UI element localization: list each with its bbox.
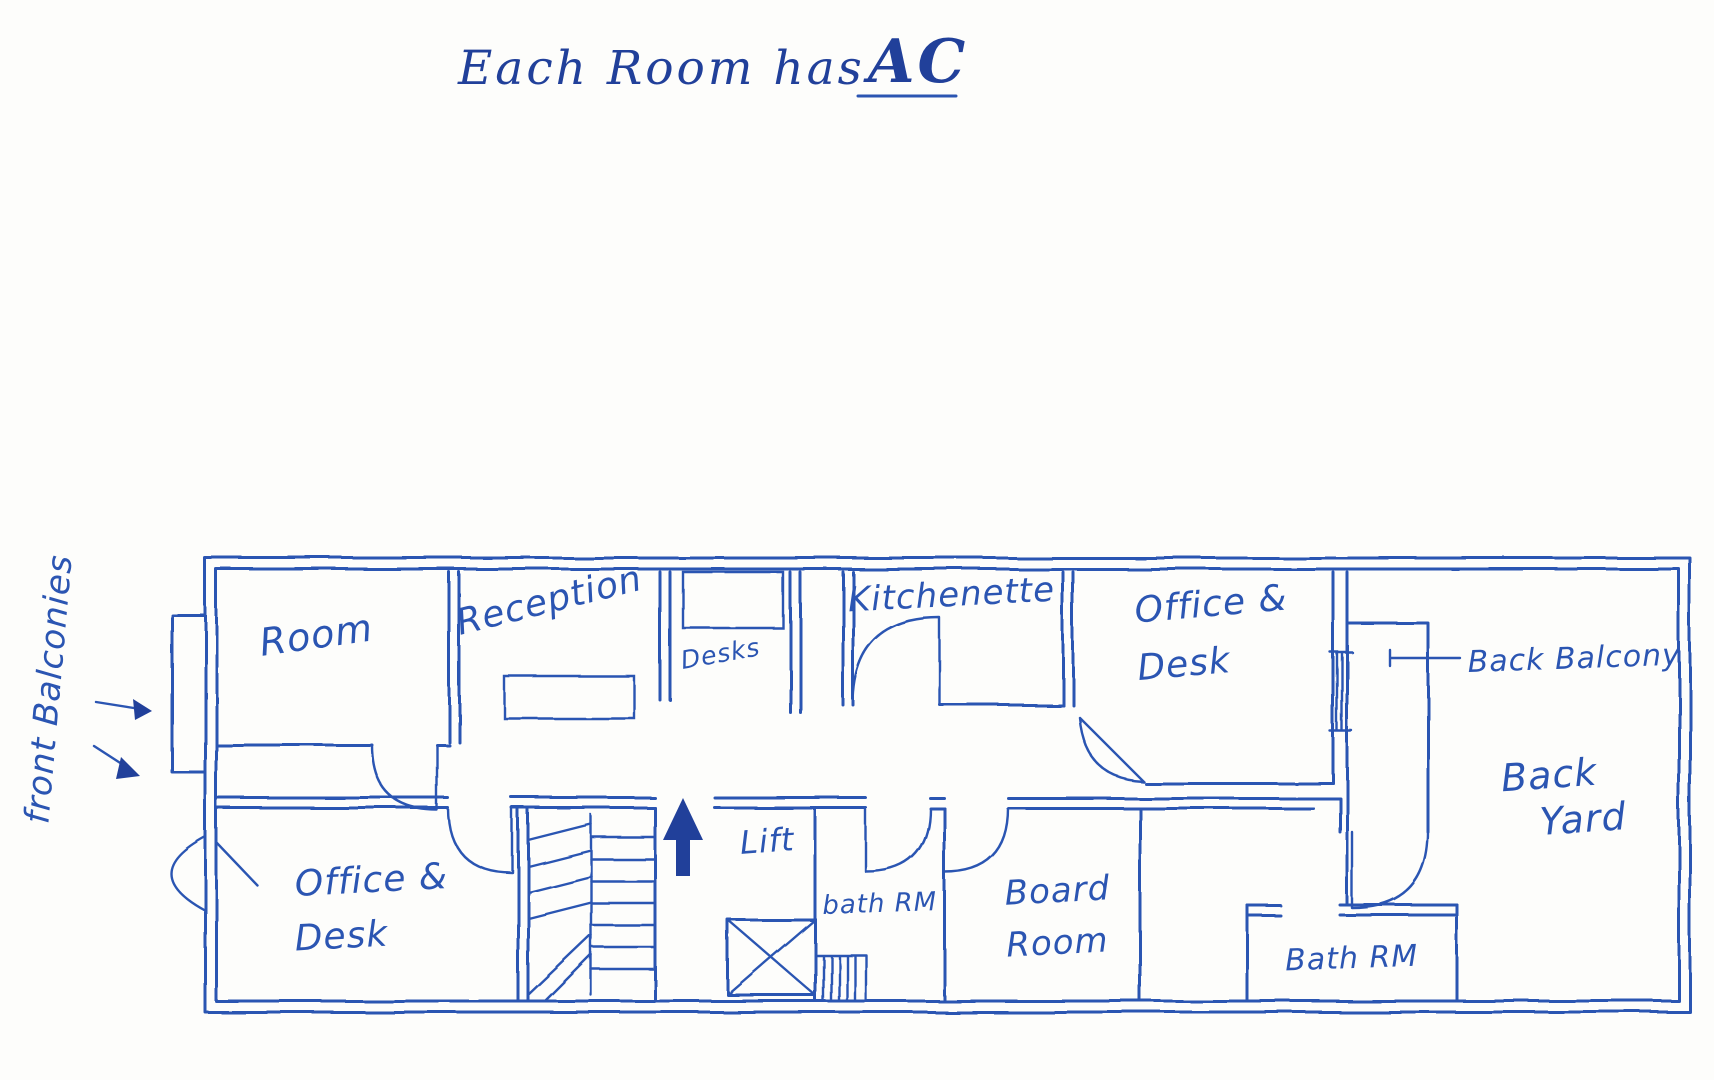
- room-label-board-room-1: Board: [1004, 868, 1111, 913]
- interior-walls: [216, 572, 1457, 1001]
- room-label-bath-rm-large: Bath RM: [1285, 939, 1419, 979]
- front-balcony-upper: [172, 615, 205, 772]
- lift-shaft: [728, 920, 866, 1001]
- title-text: Each Room has: [457, 41, 865, 96]
- reception-desk: [504, 676, 634, 718]
- back-balcony-callout: Back Balcony: [1390, 638, 1682, 680]
- front-balconies-label: front Balconies: [17, 553, 80, 826]
- stairs: [528, 815, 655, 1001]
- page-title: Each Room has AC: [457, 27, 968, 97]
- room-label-office-bottom-2: Desk: [294, 914, 391, 960]
- room-label-office-bottom-1: Office &: [294, 856, 449, 905]
- room-label-reception: Reception: [452, 558, 646, 644]
- up-arrow-icon: [663, 798, 703, 876]
- room-label-board-room-2: Room: [1005, 920, 1109, 965]
- room-label-desks: Desks: [679, 632, 763, 674]
- room-label-office-top-2: Desk: [1136, 640, 1234, 689]
- back-balcony-label: Back Balcony: [1467, 638, 1682, 680]
- room-label-bath-rm-small: bath RM: [822, 887, 938, 921]
- room-label-kitchenette: Kitchenette: [847, 570, 1056, 621]
- pointer-arrows-icon: [94, 699, 152, 779]
- room-label-back-yard-1: Back: [1500, 750, 1600, 801]
- back-balcony-strip: [1347, 623, 1428, 905]
- room-label-back-yard-2: Yard: [1538, 794, 1628, 844]
- title-emphasis: AC: [863, 27, 968, 97]
- hatched-fixture: [815, 955, 866, 1001]
- leader-line: [1390, 650, 1460, 666]
- exterior-walls: [171, 558, 1691, 1012]
- floor-plan-sketch: Each Room has AC front Balconies: [0, 0, 1714, 1080]
- room-label-office-top-1: Office &: [1133, 577, 1289, 631]
- scanned-floor-plan-page: Each Room has AC front Balconies: [0, 0, 1714, 1080]
- desks-table: [683, 572, 783, 628]
- front-balconies-note: front Balconies: [17, 553, 152, 826]
- room-label-room: Room: [257, 605, 376, 664]
- front-balcony-lower: [171, 836, 206, 910]
- room-label-lift: Lift: [739, 820, 797, 862]
